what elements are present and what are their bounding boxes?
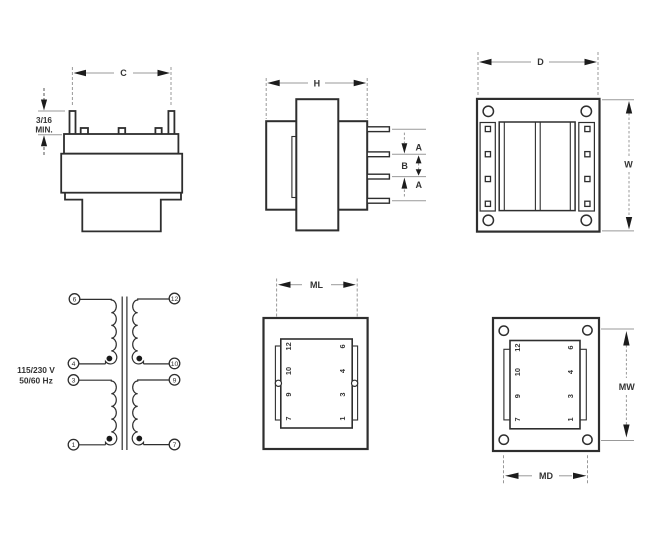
svg-text:6: 6 bbox=[73, 297, 77, 304]
svg-text:9: 9 bbox=[284, 393, 293, 397]
svg-text:MIN.: MIN. bbox=[35, 126, 52, 135]
svg-text:6: 6 bbox=[566, 346, 575, 350]
svg-text:7: 7 bbox=[513, 417, 522, 421]
svg-text:1: 1 bbox=[566, 417, 575, 421]
svg-text:10: 10 bbox=[171, 361, 179, 368]
svg-text:B: B bbox=[401, 161, 408, 171]
svg-text:10: 10 bbox=[284, 367, 293, 375]
svg-text:4: 4 bbox=[72, 361, 76, 368]
svg-text:1: 1 bbox=[72, 442, 76, 449]
svg-text:C: C bbox=[120, 68, 127, 78]
svg-text:12: 12 bbox=[171, 296, 179, 303]
svg-text:MW: MW bbox=[619, 382, 635, 392]
svg-text:W: W bbox=[624, 160, 633, 170]
svg-text:12: 12 bbox=[513, 343, 522, 351]
svg-text:3: 3 bbox=[338, 393, 347, 397]
svg-text:6: 6 bbox=[338, 344, 347, 348]
svg-text:7: 7 bbox=[284, 416, 293, 420]
svg-text:7: 7 bbox=[173, 442, 177, 449]
svg-text:3/16: 3/16 bbox=[36, 116, 52, 125]
svg-text:H: H bbox=[314, 79, 321, 89]
svg-text:9: 9 bbox=[513, 394, 522, 398]
svg-text:9: 9 bbox=[173, 377, 177, 384]
svg-text:3: 3 bbox=[72, 378, 76, 385]
svg-text:A: A bbox=[415, 142, 422, 152]
svg-text:MD: MD bbox=[539, 471, 553, 481]
svg-text:3: 3 bbox=[566, 394, 575, 398]
svg-text:ML: ML bbox=[310, 280, 323, 290]
svg-text:12: 12 bbox=[284, 342, 293, 350]
svg-text:50/60 Hz: 50/60 Hz bbox=[19, 375, 53, 385]
svg-text:115/230 V: 115/230 V bbox=[17, 365, 55, 375]
svg-text:10: 10 bbox=[513, 368, 522, 376]
svg-text:A: A bbox=[415, 180, 422, 190]
svg-text:D: D bbox=[537, 57, 544, 67]
svg-text:1: 1 bbox=[338, 416, 347, 420]
